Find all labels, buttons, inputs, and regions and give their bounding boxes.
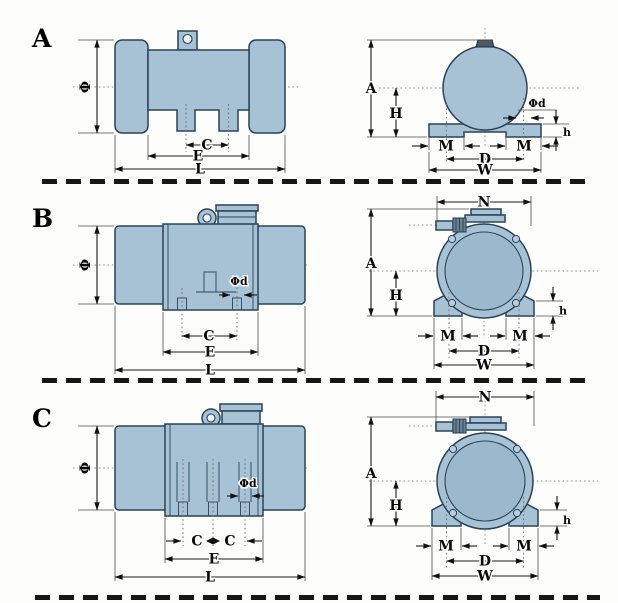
dim-label-l: L: [205, 570, 215, 586]
bolt: [448, 235, 455, 242]
dim-m: M M: [416, 528, 554, 555]
dim-label-m1: M: [438, 539, 454, 555]
dim-c: C C: [166, 534, 262, 550]
dim-label-h-cap: H: [389, 106, 402, 122]
row-a-side-view: Φ C E L: [0, 6, 309, 178]
bolt: [512, 299, 519, 306]
motor-body: [115, 404, 305, 516]
dim-e: E: [148, 135, 249, 165]
terminal-box: [222, 411, 260, 424]
dim-label-c1: C: [191, 534, 202, 550]
dim-phi: Φ: [78, 40, 114, 133]
eye-hole: [203, 214, 211, 222]
dim-label-h: h: [563, 126, 571, 139]
dim-label-n: N: [478, 195, 491, 211]
cover-plate: [445, 232, 523, 310]
lug-hole: [183, 35, 192, 44]
figure-canvas: A B C Φ C E: [0, 0, 618, 603]
row-c-side-view: Φ Φd C C E L: [0, 384, 309, 594]
dim-l: L: [115, 512, 305, 586]
dim-h: h: [540, 496, 571, 540]
row-b-front-view: N A H: [309, 188, 618, 378]
dim-label-l: L: [205, 363, 215, 379]
dim-label-d: D: [479, 554, 491, 570]
dim-label-c: C: [203, 329, 214, 345]
bolt: [449, 509, 456, 516]
dim-label-phid: Φd: [239, 477, 257, 490]
dim-label-e: E: [209, 552, 220, 568]
dim-label-m1: M: [438, 139, 454, 155]
bolt: [448, 299, 455, 306]
dim-label-m2: M: [516, 539, 532, 555]
motor-body: [115, 31, 285, 133]
dim-label-e: E: [205, 345, 216, 361]
cable-gland: [436, 422, 453, 431]
dim-label-h-cap: H: [389, 288, 402, 304]
shared-arrow-diamond: [206, 538, 220, 545]
dim-label-w: W: [476, 163, 493, 179]
cover-plate: [445, 441, 525, 521]
dim-label-m2: M: [516, 139, 532, 155]
top-cap: [476, 40, 494, 47]
dim-h-cap: H: [389, 481, 402, 526]
dim-label-a: A: [365, 81, 378, 97]
row-b-side-view: Φ Φd C E L: [0, 188, 309, 378]
dim-label-phi: Φ: [78, 259, 94, 271]
dashed-separator: [35, 595, 600, 600]
dim-label-a: A: [365, 466, 378, 482]
dim-c: C: [182, 329, 237, 345]
center-housing: [163, 224, 258, 310]
dim-label-phi: Φ: [78, 81, 94, 93]
dim-label-h-cap: H: [389, 498, 402, 514]
dashed-separator: [42, 179, 590, 184]
dim-label-c2: C: [224, 534, 235, 550]
dim-label-l: L: [195, 162, 205, 178]
dim-h: h: [536, 287, 567, 330]
dim-label-w: W: [475, 358, 492, 374]
bolt: [513, 509, 520, 516]
dim-h-cap: H: [389, 88, 402, 137]
cable-gland: [436, 221, 453, 230]
bolt: [449, 445, 456, 452]
motor-body: [429, 40, 541, 137]
terminal-box: [471, 209, 501, 215]
center-housing: [148, 50, 249, 131]
row-a-front-view: A H Φd h M M: [309, 6, 618, 178]
bolt: [512, 235, 519, 242]
right-end-cap: [249, 40, 285, 133]
dim-label-m1: M: [440, 329, 456, 345]
dim-label-w: W: [476, 569, 493, 585]
dim-h: h: [543, 110, 571, 151]
bolt: [513, 445, 520, 452]
dim-d: D: [447, 554, 524, 570]
dim-h-cap: H: [389, 271, 402, 316]
terminal-box-lid: [465, 215, 505, 222]
dim-label-m2: M: [512, 329, 528, 345]
terminal-box-lid: [220, 404, 262, 411]
left-end-cap: [115, 40, 148, 133]
dim-label-phid: Φd: [230, 275, 248, 288]
motor-body: [115, 205, 305, 310]
dim-label-a: A: [365, 256, 378, 272]
motor-shell: [443, 46, 527, 130]
terminal-box: [470, 417, 501, 423]
terminal-box-lid: [465, 423, 506, 430]
dim-label-phid: Φd: [528, 97, 546, 110]
dim-label-h: h: [559, 305, 567, 318]
dim-label-n: N: [479, 390, 492, 406]
dim-label-phi: Φ: [78, 462, 94, 474]
eye-hole: [207, 414, 215, 422]
terminal-box-lid: [216, 205, 258, 211]
motor-body: [432, 417, 538, 529]
row-c-front-view: N A H: [309, 384, 618, 594]
dim-label-h: h: [563, 514, 571, 527]
dashed-separator: [42, 378, 590, 383]
